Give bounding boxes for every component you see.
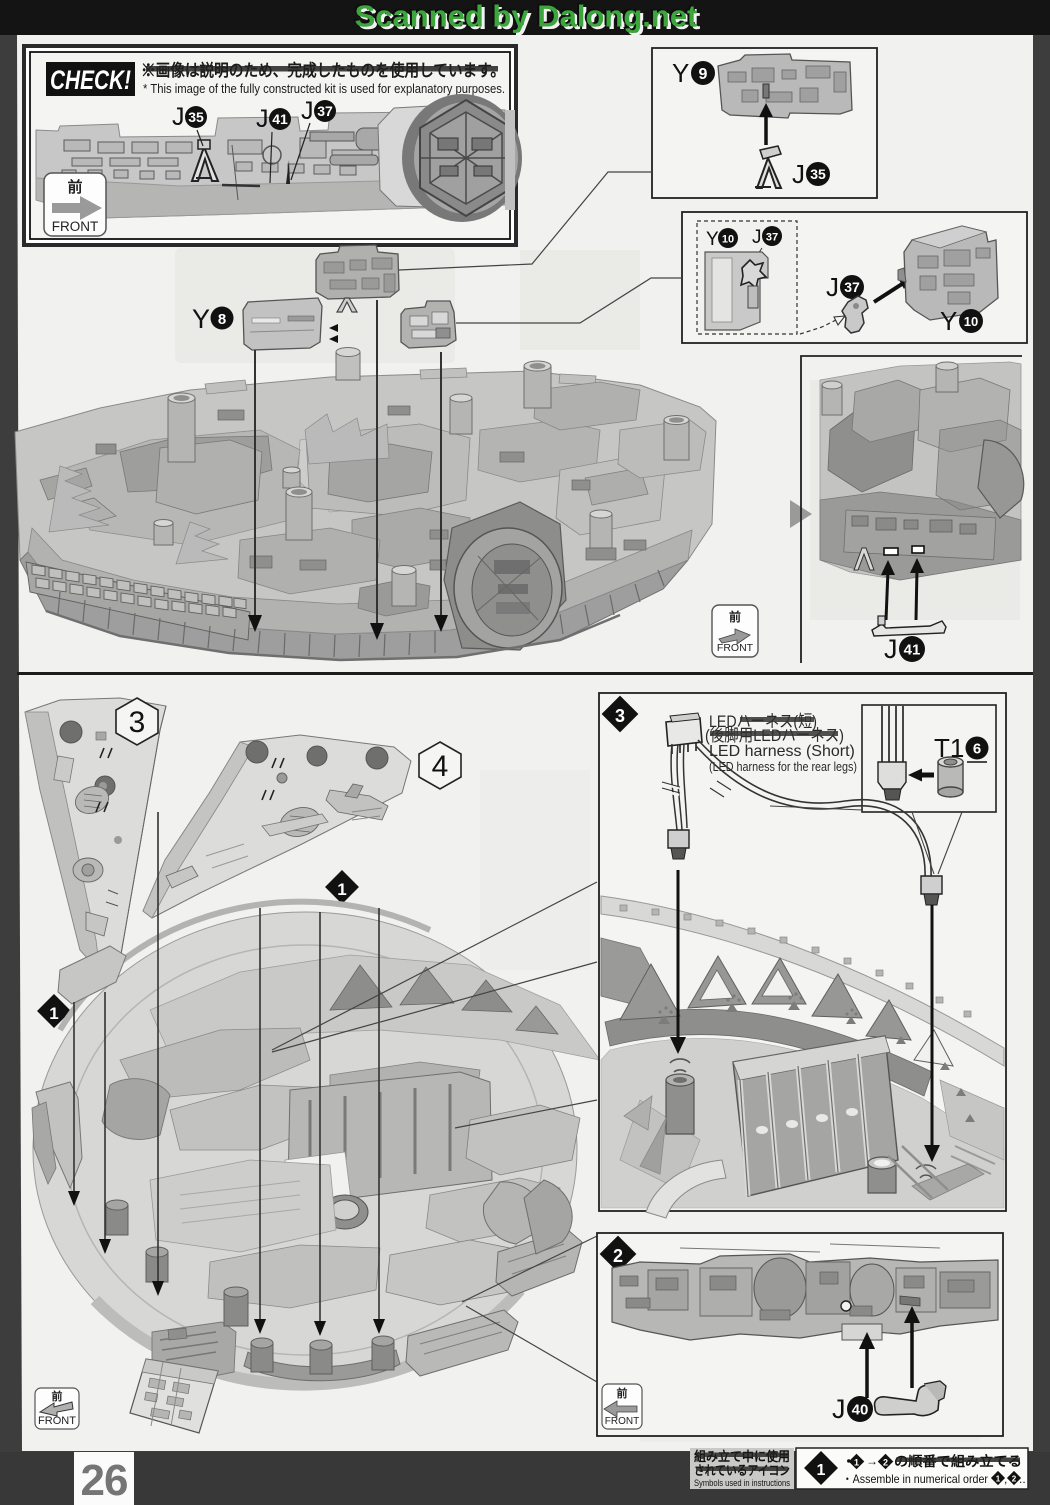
svg-text:Symbols used in instructions: Symbols used in instructions xyxy=(694,1478,790,1488)
svg-text:10: 10 xyxy=(964,314,978,329)
svg-text:41: 41 xyxy=(904,642,921,659)
svg-text:J: J xyxy=(256,105,269,133)
svg-text:4: 4 xyxy=(432,750,449,783)
svg-text:..: .. xyxy=(1019,1472,1026,1486)
svg-text:Scanned by Dalong.net: Scanned by Dalong.net xyxy=(355,0,698,34)
svg-text:1: 1 xyxy=(996,1475,1001,1484)
svg-text:3: 3 xyxy=(129,706,146,739)
svg-text:40: 40 xyxy=(852,1402,869,1419)
svg-text:41: 41 xyxy=(272,111,288,127)
svg-text:35: 35 xyxy=(188,109,204,125)
svg-text:J: J xyxy=(826,272,839,302)
svg-text:1: 1 xyxy=(49,1004,58,1023)
svg-text:FRONT: FRONT xyxy=(605,1416,639,1427)
svg-text:Y: Y xyxy=(192,304,210,334)
svg-text:前: 前 xyxy=(617,1386,628,1400)
svg-text:1: 1 xyxy=(817,1462,826,1479)
svg-text:,: , xyxy=(1004,1472,1007,1486)
svg-text:1: 1 xyxy=(854,1458,859,1468)
svg-text:37: 37 xyxy=(317,103,333,119)
svg-text:・Assemble in numerical order: ・Assemble in numerical order xyxy=(842,1472,988,1486)
svg-text:6: 6 xyxy=(973,741,981,758)
svg-text:10: 10 xyxy=(722,234,734,246)
svg-text:J: J xyxy=(884,634,898,664)
svg-text:J: J xyxy=(172,103,185,131)
svg-text:J: J xyxy=(792,159,805,189)
svg-text:37: 37 xyxy=(766,232,778,244)
svg-text:前: 前 xyxy=(729,609,741,624)
svg-text:9: 9 xyxy=(699,66,708,83)
svg-text:2: 2 xyxy=(1012,1475,1017,1484)
svg-text:26: 26 xyxy=(81,1456,128,1505)
svg-text:J: J xyxy=(832,1394,846,1424)
svg-text:8: 8 xyxy=(218,311,226,328)
svg-text:FRONT: FRONT xyxy=(52,219,99,234)
svg-text:T1: T1 xyxy=(934,733,964,763)
svg-text:37: 37 xyxy=(844,279,860,295)
svg-text:J: J xyxy=(301,97,314,125)
svg-text:35: 35 xyxy=(810,166,826,182)
svg-text:Y: Y xyxy=(940,306,957,336)
svg-text:FRONT: FRONT xyxy=(38,1415,76,1427)
svg-text:* This image of the fully cons: * This image of the fully constructed ki… xyxy=(143,81,505,96)
svg-text:2: 2 xyxy=(883,1458,888,1468)
svg-text:3: 3 xyxy=(615,706,625,726)
svg-text:前: 前 xyxy=(52,1389,63,1403)
svg-text:Y: Y xyxy=(706,229,719,250)
svg-text:2: 2 xyxy=(613,1246,623,1266)
svg-text:J: J xyxy=(752,227,762,248)
svg-text:FRONT: FRONT xyxy=(717,642,754,654)
svg-text:前: 前 xyxy=(67,178,82,196)
svg-text:→: → xyxy=(866,1454,878,1468)
svg-text:Y: Y xyxy=(672,58,689,88)
svg-text:1: 1 xyxy=(337,880,346,899)
svg-text:CHECK!: CHECK! xyxy=(50,65,131,95)
svg-text:(LED harness for the rear legs: (LED harness for the rear legs) xyxy=(709,759,857,774)
svg-text:LED harness (Short): LED harness (Short) xyxy=(709,743,855,760)
